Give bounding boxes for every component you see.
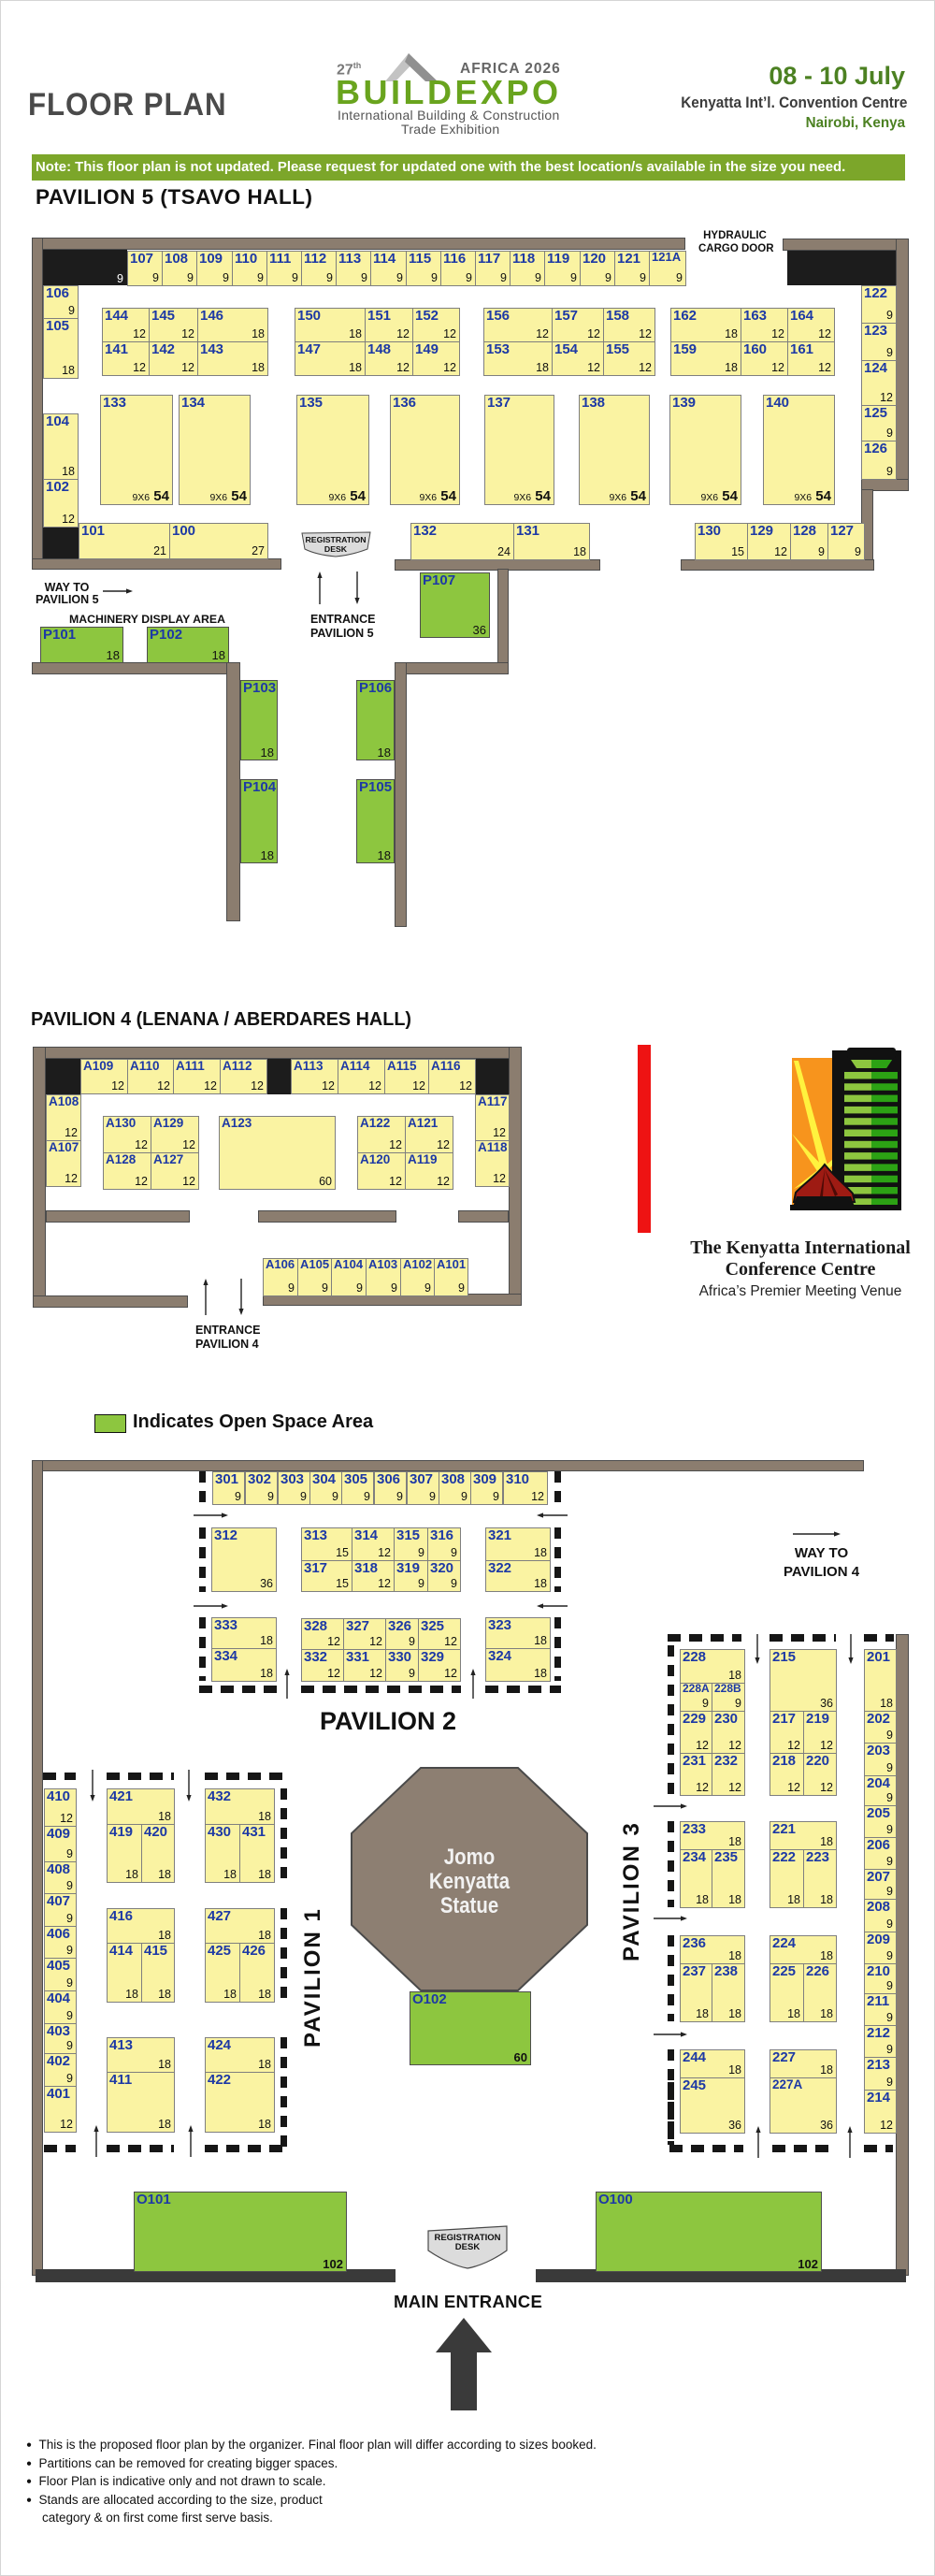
svg-text:DESK: DESK	[324, 544, 348, 554]
svg-text:DESK: DESK	[455, 2242, 481, 2252]
svg-text:REGISTRATION: REGISTRATION	[306, 535, 367, 544]
